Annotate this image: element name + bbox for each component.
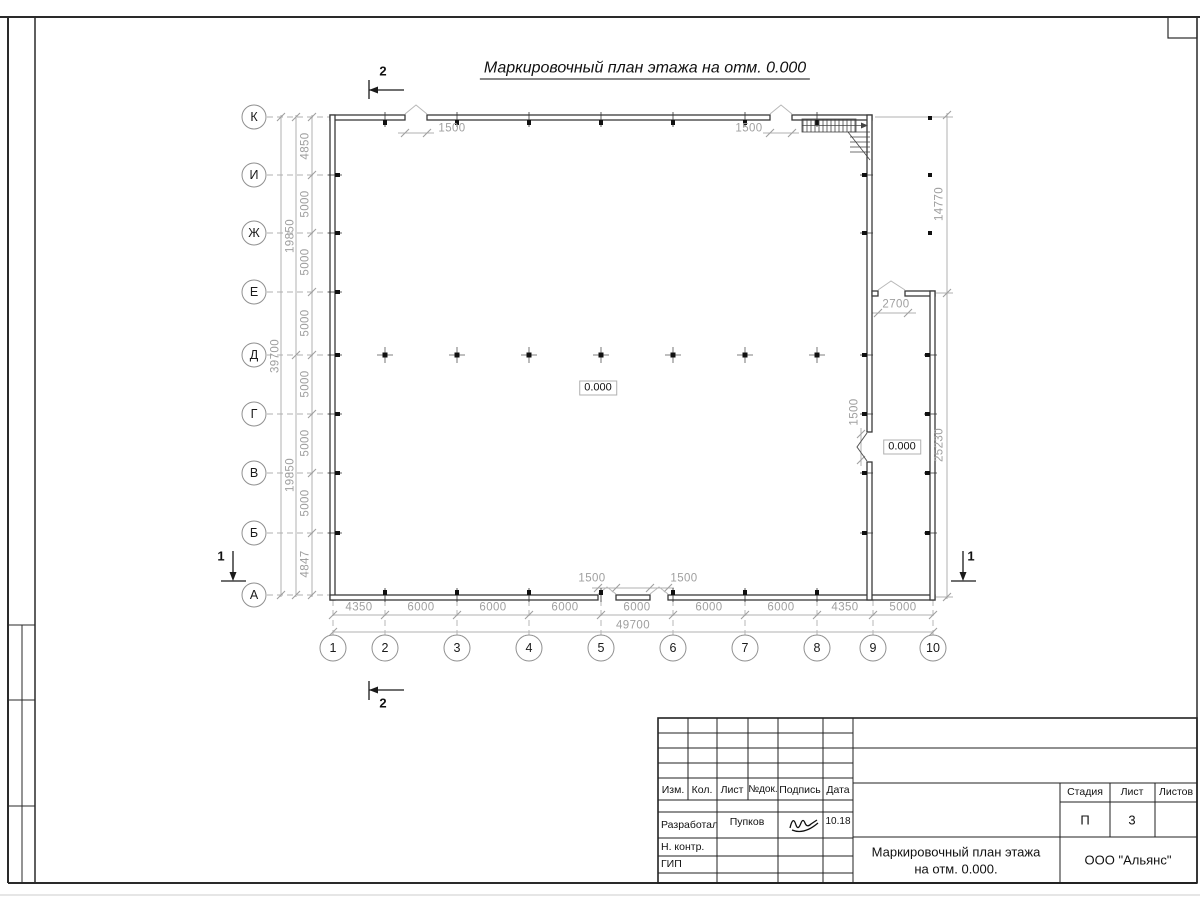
dim-left-seg-3: 5000: [300, 248, 312, 275]
axis-row-А: А: [250, 589, 258, 602]
dim-bottom-seg-9: 5000: [889, 602, 916, 614]
axis-col-2: 2: [382, 642, 389, 655]
axis-col-3: 3: [454, 642, 461, 655]
opening-peaks: [405, 105, 905, 594]
dim-left-seg-7: 5000: [300, 489, 312, 516]
tb-header-data: Дата: [826, 785, 849, 796]
dim-opening-bottom-right: 1500: [670, 573, 697, 585]
axis-col-8: 8: [814, 642, 821, 655]
dim-opening-bottom-left: 1500: [578, 573, 605, 585]
tb-developed-label: Разработал: [661, 820, 718, 831]
axis-row-Ж: Ж: [248, 227, 260, 240]
dimension-lines: [281, 113, 953, 632]
tb-header-kol: Кол.: [692, 785, 713, 796]
dim-bottom-seg-3: 6000: [479, 602, 506, 614]
dim-left-seg-2: 5000: [300, 190, 312, 217]
section-number-right: 1: [967, 550, 974, 563]
drawing-canvas: [0, 0, 1200, 900]
dim-left-total: 39700: [270, 339, 282, 373]
axis-row-Д: Д: [250, 349, 258, 362]
tb-sheet-label: Лист: [1121, 787, 1144, 798]
elevation-mark-hall: 0.000: [579, 381, 617, 396]
dim-left-seg-8: 4847: [300, 550, 312, 577]
dim-left-seg-5: 5000: [300, 370, 312, 397]
axis-row-В: В: [250, 467, 258, 480]
tb-doc-title-line2: на отм. 0.000.: [914, 863, 997, 876]
dim-left-group-2: 19850: [285, 458, 297, 492]
dim-opening-door: 1500: [849, 398, 861, 425]
tb-stage-value: П: [1080, 814, 1089, 827]
tb-header-list: Лист: [721, 785, 744, 796]
axis-col-5: 5: [598, 642, 605, 655]
tb-stage-label: Стадия: [1067, 787, 1103, 798]
tb-header-ndok: №док.: [748, 785, 777, 795]
tb-developed-name: Пупков: [730, 817, 765, 828]
walls: [330, 115, 935, 600]
tb-doc-title-line1: Маркировочный план этажа: [872, 846, 1041, 859]
axis-row-Е: Е: [250, 286, 258, 299]
dim-opening-top-left: 1500: [438, 123, 465, 135]
axis-col-4: 4: [526, 642, 533, 655]
axis-col-1: 1: [330, 642, 337, 655]
dim-bottom-total: 49700: [616, 620, 650, 632]
tb-ncontr-label: Н. контр.: [661, 842, 704, 853]
axis-col-6: 6: [670, 642, 677, 655]
dim-left-group-1: 19850: [285, 219, 297, 253]
sheet-frame: [0, 17, 1200, 895]
tb-header-izm: Изм.: [662, 785, 685, 796]
dim-left-seg-4: 5000: [300, 309, 312, 336]
dim-left-seg-1: 4850: [300, 132, 312, 159]
dim-bottom-seg-6: 6000: [695, 602, 722, 614]
axis-lines: [267, 117, 933, 636]
staircase: [802, 119, 870, 160]
dim-right-upper: 14770: [934, 187, 946, 221]
section-number-left: 1: [217, 550, 224, 563]
column-wall-ticks: [328, 112, 937, 602]
tb-sheet-value: 3: [1128, 814, 1135, 827]
dim-opening-annex: 2700: [882, 299, 909, 311]
dim-bottom-seg-5: 6000: [623, 602, 650, 614]
dim-bottom-seg-7: 6000: [767, 602, 794, 614]
dim-opening-top-right: 1500: [735, 123, 762, 135]
dim-left-seg-6: 5000: [300, 429, 312, 456]
dim-bottom-seg-4: 6000: [551, 602, 578, 614]
axis-col-9: 9: [870, 642, 877, 655]
axis-row-Г: Г: [251, 408, 258, 421]
drawing-title: Маркировочный план этажа на отм. 0.000: [480, 61, 810, 80]
tb-sheets-label: Листов: [1159, 787, 1193, 798]
dim-bottom-seg-1: 4350: [345, 602, 372, 614]
column-squares: [335, 116, 932, 595]
tb-gip-label: ГИП: [661, 859, 682, 870]
signature: [790, 820, 818, 831]
tb-developed-date: 10.18: [825, 817, 850, 827]
dimension-ticks: [277, 111, 951, 636]
tb-company: ООО "Альянс": [1085, 854, 1172, 867]
dim-bottom-seg-2: 6000: [407, 602, 434, 614]
axis-col-7: 7: [742, 642, 749, 655]
axis-row-Б: Б: [250, 527, 258, 540]
dim-right-lower: 25230: [934, 428, 946, 462]
axis-row-И: И: [250, 169, 259, 182]
elevation-mark-annex: 0.000: [883, 440, 921, 455]
axis-col-10: 10: [926, 642, 940, 655]
section-number-bottom: 2: [379, 697, 386, 710]
section-number-top: 2: [379, 65, 386, 78]
axis-row-К: К: [250, 111, 257, 124]
dim-bottom-seg-8: 4350: [831, 602, 858, 614]
tb-header-podpis: Подпись: [779, 785, 821, 796]
